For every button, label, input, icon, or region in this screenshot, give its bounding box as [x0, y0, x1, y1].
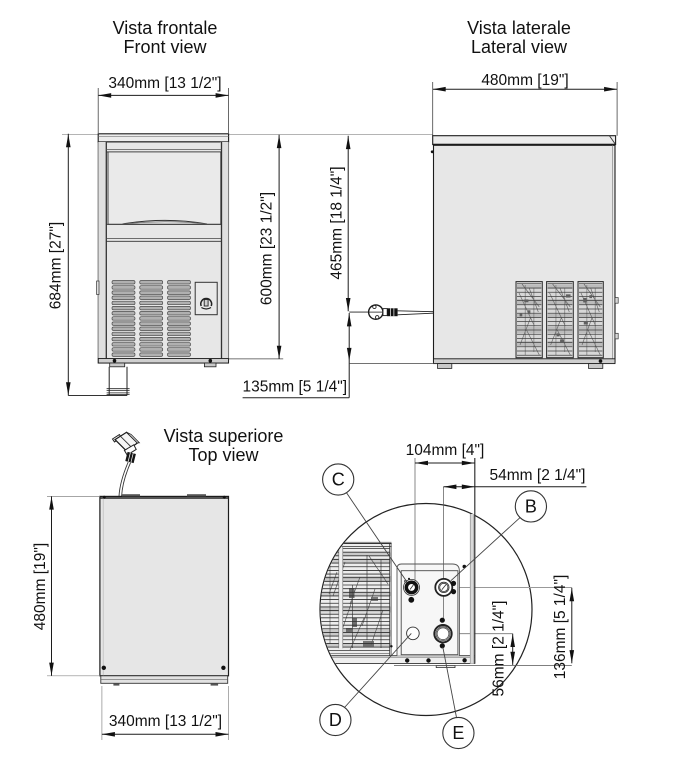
svg-text:135mm [5 1/4"]: 135mm [5 1/4"]	[243, 379, 348, 396]
svg-text:D: D	[329, 710, 342, 730]
svg-text:Vista frontale: Vista frontale	[113, 18, 218, 38]
svg-text:465mm [18 1/4"]: 465mm [18 1/4"]	[328, 166, 345, 279]
svg-text:54mm [2 1/4"]: 54mm [2 1/4"]	[490, 467, 586, 484]
svg-text:Vista laterale: Vista laterale	[467, 18, 571, 38]
svg-text:136mm [5 1/4"]: 136mm [5 1/4"]	[552, 575, 569, 680]
svg-text:480mm [19"]: 480mm [19"]	[481, 72, 568, 89]
svg-text:C: C	[332, 470, 345, 490]
svg-text:104mm [4"]: 104mm [4"]	[406, 442, 485, 459]
svg-text:Top view: Top view	[188, 445, 259, 465]
svg-text:480mm [19"]: 480mm [19"]	[32, 543, 49, 630]
svg-text:B: B	[525, 496, 537, 516]
svg-text:340mm [13 1/2"]: 340mm [13 1/2"]	[109, 713, 222, 730]
svg-text:56mm [2 1/4"]: 56mm [2 1/4"]	[491, 601, 508, 697]
svg-text:684mm [27"]: 684mm [27"]	[48, 222, 65, 309]
svg-text:340mm [13 1/2"]: 340mm [13 1/2"]	[108, 75, 221, 92]
svg-text:Vista superiore: Vista superiore	[164, 426, 284, 446]
svg-text:Front view: Front view	[123, 37, 207, 57]
svg-text:E: E	[452, 723, 464, 743]
svg-text:600mm [23 1/2"]: 600mm [23 1/2"]	[258, 192, 275, 305]
svg-text:Lateral view: Lateral view	[471, 37, 568, 57]
